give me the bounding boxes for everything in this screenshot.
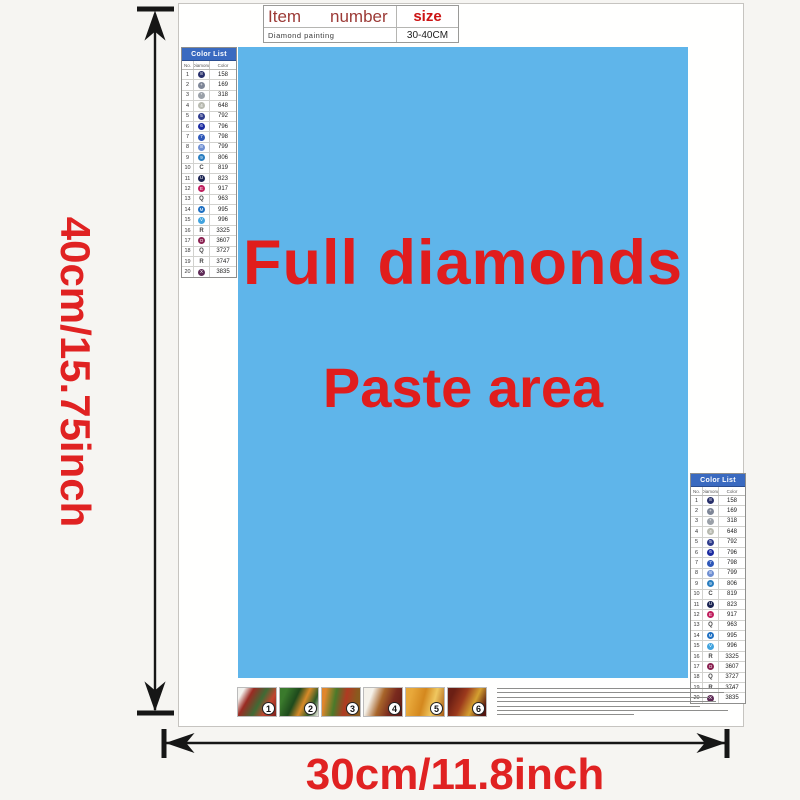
diamond-color-dot: E: [198, 185, 205, 192]
color-row-number: 10: [182, 164, 194, 173]
color-row-number: 3: [691, 517, 703, 526]
color-row-number: 16: [182, 226, 194, 235]
color-list-row: 3 * 318: [182, 91, 236, 101]
color-list-title: Color List: [182, 48, 236, 61]
color-row-number: 9: [182, 153, 194, 162]
color-row-number: 7: [182, 132, 194, 141]
diamond-color-dot: V: [198, 217, 205, 224]
diamond-color-dot: 6: [707, 549, 714, 556]
color-code: 963: [719, 621, 745, 630]
diamond-symbol-cell: E: [703, 610, 719, 619]
step-thumbnail: 4: [363, 687, 403, 717]
color-list-row: 18 Q 3727: [691, 673, 745, 683]
color-code: 799: [210, 143, 236, 152]
diamond-color-dot: 8: [198, 71, 205, 78]
color-list-row: 6 6 796: [182, 122, 236, 132]
color-row-number: 3: [182, 91, 194, 100]
step-thumbnail: 2: [279, 687, 319, 717]
color-list-row: 15 V 996: [182, 215, 236, 225]
color-code: 792: [719, 538, 745, 547]
color-list-rows: 1 8 158 2 + 169 3 * 318 4 4 648 5 5 792 …: [182, 70, 236, 277]
color-row-number: 2: [691, 506, 703, 515]
color-list-rows: 1 8 158 2 + 169 3 * 318 4 4 648 5 5 792 …: [691, 496, 745, 703]
step-thumbnail: 5: [405, 687, 445, 717]
color-row-number: 7: [691, 558, 703, 567]
color-code: 995: [719, 631, 745, 640]
diamond-symbol-cell: Q: [703, 621, 719, 630]
color-list-row: 1 8 158: [182, 70, 236, 80]
color-code: 996: [719, 641, 745, 650]
color-list-row: 8 8 799: [691, 569, 745, 579]
diamond-symbol-cell: M: [703, 631, 719, 640]
color-row-number: 13: [691, 621, 703, 630]
diamond-symbol-cell: 9: [194, 153, 210, 162]
diamond-letter-symbol: R: [708, 654, 712, 660]
color-row-number: 4: [691, 527, 703, 536]
diamond-color-dot: 7: [198, 134, 205, 141]
diamond-color-dot: 8: [707, 570, 714, 577]
diamond-color-dot: M: [707, 632, 714, 639]
diamond-symbol-cell: 5: [703, 538, 719, 547]
diamond-letter-symbol: R: [199, 228, 203, 234]
diamond-symbol-cell: +: [194, 80, 210, 89]
diamond-color-dot: U: [707, 601, 714, 608]
paste-area-subtitle: Paste area: [238, 355, 688, 420]
color-list-title: Color List: [691, 474, 745, 487]
color-list-row: 9 9 806: [182, 153, 236, 163]
color-code: 3607: [210, 236, 236, 245]
table-cell-item-name: Diamond painting: [264, 27, 396, 42]
diamond-symbol-cell: *: [703, 517, 719, 526]
diamond-color-dot: 6: [198, 123, 205, 130]
color-code: 3747: [210, 257, 236, 266]
color-list-row: 14 M 995: [691, 631, 745, 641]
color-row-number: 19: [182, 257, 194, 266]
step-number-badge: 2: [304, 702, 317, 715]
color-code: 648: [719, 527, 745, 536]
color-code: 3325: [210, 226, 236, 235]
diamond-color-dot: U: [198, 175, 205, 182]
color-row-number: 8: [691, 569, 703, 578]
color-code: 3325: [719, 652, 745, 661]
color-code: 917: [210, 184, 236, 193]
color-list-row: 5 5 792: [182, 112, 236, 122]
color-code: 3727: [719, 673, 745, 682]
color-list-row: 19 R 3747: [182, 257, 236, 267]
diamond-symbol-cell: 9: [703, 579, 719, 588]
color-list-row: 3 * 318: [691, 517, 745, 527]
diamond-symbol-cell: V: [703, 641, 719, 650]
diamond-color-dot: 9: [198, 154, 205, 161]
diamond-symbol-cell: Q: [194, 195, 210, 204]
color-row-number: 20: [182, 267, 194, 276]
color-row-number: 12: [691, 610, 703, 619]
color-code: 806: [719, 579, 745, 588]
color-code: 799: [719, 569, 745, 578]
color-row-number: 10: [691, 590, 703, 599]
color-code: 158: [210, 70, 236, 79]
diamond-symbol-cell: 4: [194, 101, 210, 110]
color-list-row: 2 + 169: [691, 506, 745, 516]
color-list-row: 10 C 819: [691, 590, 745, 600]
color-row-number: 15: [691, 641, 703, 650]
diamond-symbol-cell: U: [703, 600, 719, 609]
color-list-right: Color List No. Diamond Color 1 8 158 2 +…: [690, 473, 746, 704]
col-header-color: Color: [210, 61, 236, 69]
color-row-number: 13: [182, 195, 194, 204]
color-row-number: 11: [691, 600, 703, 609]
diamond-symbol-cell: O: [194, 236, 210, 245]
diamond-symbol-cell: R: [194, 257, 210, 266]
color-code: 996: [210, 215, 236, 224]
color-code: 995: [210, 205, 236, 214]
diamond-symbol-cell: 5: [194, 112, 210, 121]
table-cell-size-value: 30-40CM: [396, 27, 458, 42]
diamond-symbol-cell: Q: [703, 673, 719, 682]
color-code: 318: [210, 91, 236, 100]
color-code: 318: [719, 517, 745, 526]
diamond-letter-symbol: Q: [708, 622, 713, 628]
diamond-color-dot: 9: [707, 580, 714, 587]
color-list-row: 12 E 917: [691, 610, 745, 620]
color-list-row: 15 V 996: [691, 641, 745, 651]
color-row-number: 1: [691, 496, 703, 505]
color-row-number: 8: [182, 143, 194, 152]
color-code: 648: [210, 101, 236, 110]
color-code: 792: [210, 112, 236, 121]
diamond-symbol-cell: 6: [703, 548, 719, 557]
col-header-no: No.: [691, 487, 703, 495]
color-row-number: 5: [691, 538, 703, 547]
diamond-color-dot: V: [707, 643, 714, 650]
diamond-color-dot: M: [198, 206, 205, 213]
col-header-no: No.: [182, 61, 194, 69]
color-list-row: 5 5 792: [691, 538, 745, 548]
color-list-row: 4 4 648: [182, 101, 236, 111]
diamond-symbol-cell: R: [703, 652, 719, 661]
color-row-number: 1: [182, 70, 194, 79]
item-size-table: Item number size Diamond painting 30-40C…: [263, 5, 459, 43]
diamond-symbol-cell: 7: [194, 132, 210, 141]
color-code: 3727: [210, 247, 236, 256]
table-header-size: size: [396, 6, 458, 27]
diamond-symbol-cell: Q: [194, 247, 210, 256]
color-row-number: 15: [182, 215, 194, 224]
color-list-row: 11 U 823: [691, 600, 745, 610]
color-row-number: 6: [691, 548, 703, 557]
color-list-row: 17 O 3607: [691, 662, 745, 672]
step-thumbnail: 1: [237, 687, 277, 717]
color-list-row: 12 E 917: [182, 184, 236, 194]
color-list-row: 16 R 3325: [691, 652, 745, 662]
step-thumbnail: 3: [321, 687, 361, 717]
color-list-row: 8 8 799: [182, 143, 236, 153]
instruction-steps: 1 2 3 4 5 6: [237, 687, 487, 717]
color-list-row: 10 C 819: [182, 164, 236, 174]
step-number-badge: 1: [262, 702, 275, 715]
diamond-symbol-cell: X: [194, 267, 210, 276]
color-code: 3835: [210, 267, 236, 276]
color-list-row: 11 U 823: [182, 174, 236, 184]
color-list-row: 14 M 995: [182, 205, 236, 215]
color-row-number: 14: [691, 631, 703, 640]
diamond-symbol-cell: 7: [703, 558, 719, 567]
color-list-row: 4 4 648: [691, 527, 745, 537]
diamond-symbol-cell: 8: [194, 143, 210, 152]
color-code: 3607: [719, 662, 745, 671]
paste-area-title: Full diamonds: [238, 227, 688, 299]
color-row-number: 11: [182, 174, 194, 183]
step-number-badge: 5: [430, 702, 443, 715]
color-row-number: 14: [182, 205, 194, 214]
color-list-row: 20 X 3835: [182, 267, 236, 276]
color-row-number: 17: [182, 236, 194, 245]
color-list-column-headers: No. Diamond Color: [182, 61, 236, 70]
diamond-color-dot: O: [707, 663, 714, 670]
color-code: 917: [719, 610, 745, 619]
col-header-color: Color: [719, 487, 745, 495]
color-list-row: 18 Q 3727: [182, 247, 236, 257]
color-row-number: 4: [182, 101, 194, 110]
color-code: 823: [719, 600, 745, 609]
diamond-color-dot: 4: [198, 102, 205, 109]
color-code: 963: [210, 195, 236, 204]
diamond-color-dot: 4: [707, 528, 714, 535]
color-code: 798: [210, 132, 236, 141]
color-list-row: 6 6 796: [691, 548, 745, 558]
col-header-diamond: Diamond: [703, 487, 719, 495]
color-list-row: 16 R 3325: [182, 226, 236, 236]
diamond-symbol-cell: *: [194, 91, 210, 100]
color-row-number: 17: [691, 662, 703, 671]
color-list-row: 1 8 158: [691, 496, 745, 506]
color-code: 796: [210, 122, 236, 131]
color-list-row: 7 7 798: [691, 558, 745, 568]
width-dimension-label: 30cm/11.8inch: [306, 750, 604, 800]
color-code: 158: [719, 496, 745, 505]
color-code: 796: [719, 548, 745, 557]
color-row-number: 16: [691, 652, 703, 661]
height-dimension-label: 40cm/15.75inch: [51, 217, 99, 528]
color-list-left: Color List No. Diamond Color 1 8 158 2 +…: [181, 47, 237, 278]
diamond-letter-symbol: Q: [199, 196, 204, 202]
diamond-symbol-cell: O: [703, 662, 719, 671]
diamond-color-dot: E: [707, 611, 714, 618]
color-list-row: 9 9 806: [691, 579, 745, 589]
diamond-color-dot: 8: [198, 144, 205, 151]
diamond-symbol-cell: C: [194, 164, 210, 173]
color-row-number: 9: [691, 579, 703, 588]
color-code: 819: [719, 590, 745, 599]
diamond-color-dot: *: [707, 518, 714, 525]
table-header-number: number: [330, 6, 396, 27]
color-row-number: 2: [182, 80, 194, 89]
color-code: 806: [210, 153, 236, 162]
diamond-color-dot: X: [198, 269, 205, 276]
diamond-color-dot: 5: [198, 113, 205, 120]
diamond-symbol-cell: 8: [194, 70, 210, 79]
color-list-row: 13 Q 963: [182, 195, 236, 205]
diamond-symbol-cell: M: [194, 205, 210, 214]
color-row-number: 6: [182, 122, 194, 131]
diamond-symbol-cell: 6: [194, 122, 210, 131]
col-header-diamond: Diamond: [194, 61, 210, 69]
product-infographic: Full diamonds Paste area Item number siz…: [0, 0, 800, 800]
color-row-number: 12: [182, 184, 194, 193]
diamond-letter-symbol: Q: [708, 674, 713, 680]
diamond-color-dot: 5: [707, 539, 714, 546]
color-code: 798: [719, 558, 745, 567]
diamond-symbol-cell: +: [703, 506, 719, 515]
diamond-symbol-cell: E: [194, 184, 210, 193]
color-code: 819: [210, 164, 236, 173]
diamond-color-dot: +: [707, 508, 714, 515]
diamond-color-dot: 7: [707, 560, 714, 567]
diamond-symbol-cell: 4: [703, 527, 719, 536]
paste-area: Full diamonds Paste area: [238, 47, 688, 678]
diamond-symbol-cell: R: [194, 226, 210, 235]
diamond-color-dot: *: [198, 92, 205, 99]
color-code: 169: [719, 506, 745, 515]
diamond-symbol-cell: V: [194, 215, 210, 224]
color-list-row: 2 + 169: [182, 80, 236, 90]
color-code: 169: [210, 80, 236, 89]
diamond-symbol-cell: U: [194, 174, 210, 183]
color-code: 823: [210, 174, 236, 183]
color-list-row: 17 O 3607: [182, 236, 236, 246]
color-row-number: 18: [691, 673, 703, 682]
color-list-column-headers: No. Diamond Color: [691, 487, 745, 496]
color-list-row: 7 7 798: [182, 132, 236, 142]
color-row-number: 18: [182, 247, 194, 256]
diamond-color-dot: +: [198, 82, 205, 89]
instructions-text: [497, 688, 733, 719]
color-list-row: 13 Q 963: [691, 621, 745, 631]
diamond-letter-symbol: C: [708, 591, 712, 597]
diamond-symbol-cell: 8: [703, 569, 719, 578]
step-number-badge: 3: [346, 702, 359, 715]
diamond-letter-symbol: R: [199, 259, 203, 265]
step-number-badge: 6: [472, 702, 485, 715]
diamond-symbol-cell: 8: [703, 496, 719, 505]
diamond-color-dot: 8: [707, 497, 714, 504]
step-thumbnail: 6: [447, 687, 487, 717]
diamond-letter-symbol: C: [199, 165, 203, 171]
table-header-item: Item: [264, 6, 330, 27]
diamond-letter-symbol: Q: [199, 248, 204, 254]
step-number-badge: 4: [388, 702, 401, 715]
color-row-number: 5: [182, 112, 194, 121]
diamond-color-dot: O: [198, 237, 205, 244]
diamond-symbol-cell: C: [703, 590, 719, 599]
